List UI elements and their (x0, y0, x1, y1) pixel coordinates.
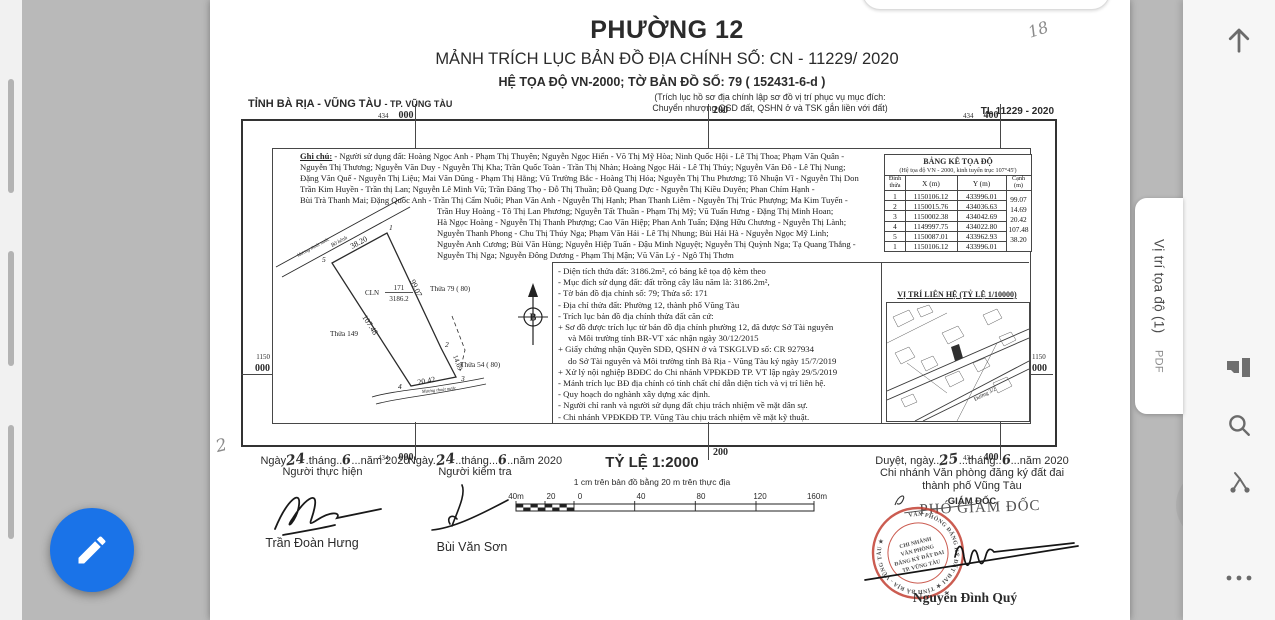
parcel-info-box: - Diện tích thửa đất: 3186.2m², có bảng … (552, 262, 882, 424)
scale-tick-label: 160m (804, 492, 830, 501)
cell: 1150087.01 (905, 232, 957, 241)
cell: 3 (885, 212, 905, 221)
sig1-name: Trần Đoàn Hưng (232, 536, 392, 550)
more-dots-icon (1225, 573, 1253, 583)
col-header: Y (m) (957, 179, 1006, 188)
coords-table-subtitle: (Hệ tọa độ VN - 2000, kinh tuyến trục 10… (885, 167, 1031, 174)
svg-text:3186.2: 3186.2 (389, 295, 409, 303)
sig2-signature (422, 478, 514, 536)
scale-bar (510, 501, 822, 515)
col-header: Đỉnhthửa (885, 176, 905, 189)
doc-purpose-1: (Trích lục hồ sơ địa chính lập sơ đồ vị … (620, 92, 920, 102)
edge-length: 14.69 (1006, 205, 1031, 214)
waterway-label: Mương thoát nước (296, 237, 332, 259)
edge-length: 38.20 (1006, 235, 1031, 244)
cell: 1150015.76 (905, 202, 957, 211)
cell: 434022.80 (957, 222, 1006, 231)
edge-length: 99.07 (1006, 195, 1031, 204)
cell: 2 (885, 202, 905, 211)
app-background: PHƯỜNG 12 MẢNH TRÍCH LỤC BẢN ĐỒ ĐỊA CHÍN… (0, 0, 1275, 620)
search-icon (1226, 412, 1252, 438)
neighbour-parcel: Thửa 54 ( 80) (460, 360, 501, 369)
cell: 1150106.12 (905, 242, 957, 251)
pen-annotation: 2 (214, 435, 229, 457)
cell: 1 (885, 192, 905, 201)
scale-tick-label: 120 (750, 492, 770, 501)
search-bar[interactable] (862, 0, 1110, 10)
grid-label: 434 400 (963, 105, 999, 123)
vertex-label: 4 (398, 382, 402, 391)
grid-label: 434 000 (378, 105, 414, 123)
vicinity-map: Đường 3/2 (886, 302, 1030, 422)
cell: 433996.01 (957, 192, 1006, 201)
north-arrow: B (518, 283, 548, 345)
scale-tick-label: 40 (631, 492, 651, 501)
grid-label: 1150000 (1032, 350, 1059, 374)
edge-length: 107.48 (1006, 225, 1031, 234)
svg-text:CLN: CLN (365, 289, 379, 297)
parcel-landuse-label: CLN 171 3186.2 (365, 284, 413, 303)
scrubber-bar[interactable] (8, 251, 14, 366)
cell: 1150002.38 (905, 212, 957, 221)
svg-text:B: B (530, 313, 537, 324)
more-options-button[interactable] (1216, 558, 1262, 598)
sig1-signature (265, 484, 395, 540)
pen-annotation: 18 (1026, 17, 1051, 41)
doc-title: PHƯỜNG 12 (367, 16, 967, 45)
edit-fab-button[interactable] (50, 508, 134, 592)
cell: 5 (885, 232, 905, 241)
cell: 1149997.75 (905, 222, 957, 231)
sig2-name: Bùi Văn Sơn (392, 540, 552, 554)
vertex-label: 3 (460, 374, 465, 383)
outline-path-button[interactable] (1216, 462, 1262, 502)
pages-icon (1226, 356, 1252, 380)
scale-tick-label: 40m (506, 492, 526, 501)
page-view-button[interactable] (1216, 348, 1262, 388)
file-tab-location[interactable]: Vị trí tọa độ (1) PDF (1135, 198, 1183, 414)
col-header: X (m) (905, 179, 957, 188)
cell: 1150106.12 (905, 192, 957, 201)
col-header: Cạnh(m) (1006, 176, 1031, 189)
document-page[interactable]: PHƯỜNG 12 MẢNH TRÍCH LỤC BẢN ĐỒ ĐỊA CHÍN… (210, 0, 1130, 620)
approve-org1: Chi nhánh Văn phòng đăng ký đất đai (852, 467, 1092, 479)
search-button[interactable] (1216, 405, 1262, 445)
doc-coord-system: HỆ TỌA ĐỘ VN-2000; TỜ BẢN ĐỒ SỐ: 79 ( 15… (362, 75, 962, 89)
doc-province: TỈNH BÀ RỊA - VŨNG TÀU - TP. VŨNG TÀU (248, 98, 452, 110)
scrubber-bar[interactable] (8, 425, 14, 539)
neighbour-parcel: Thửa 79 ( 80) (430, 284, 471, 293)
cell: 434042.69 (957, 212, 1006, 221)
sidebar-panel (1183, 0, 1275, 620)
doc-purpose-2: Chuyển nhượng QSD đất, QSHN ở và TSK gắn… (620, 103, 920, 113)
up-arrow-icon (1224, 25, 1254, 55)
parcel-polygon (332, 233, 456, 386)
scale-tick-label: 20 (541, 492, 561, 501)
file-type-badge: PDF (1153, 350, 1165, 373)
grid-tick (241, 374, 272, 375)
scrubber-bar[interactable] (8, 79, 14, 193)
coords-table: BẢNG KÊ TỌA ĐỘ (Hệ tọa độ VN - 2000, kin… (884, 154, 1032, 252)
grid-tick (415, 104, 416, 148)
sig1-role: Người thực hiện (240, 466, 405, 478)
grid-tick (1029, 374, 1053, 375)
grid-label: 200 (713, 105, 728, 116)
edge-length: 107.48 (360, 313, 380, 336)
vertex-label: 1 (389, 223, 393, 232)
node-path-icon (1226, 470, 1252, 494)
approve-name: Nguyễn Đình Quý (865, 590, 1065, 606)
edge-length: 99.07 (408, 278, 424, 298)
parcel-sketch: B 38.20 99.07 107.48 20.42 14.69 1 2 3 4… (272, 185, 562, 425)
pencil-icon (74, 532, 110, 568)
edge-length: 20.42 (1006, 215, 1031, 224)
cell: 1 (885, 242, 905, 251)
doc-subtitle: MẢNH TRÍCH LỤC BẢN ĐỒ ĐỊA CHÍNH SỐ: CN -… (317, 50, 1017, 69)
vicinity-parcel-marker (951, 344, 963, 361)
scale-note: 1 cm trên bản đồ bằng 20 m trên thực địa (552, 477, 752, 487)
vicinity-title: VỊ TRÍ LIÊN HỆ (TỶ LỆ 1/10000) (884, 290, 1030, 299)
neighbour-parcel: Thửa 149 (330, 329, 358, 338)
grid-tick (1000, 104, 1001, 148)
approve-signature (860, 512, 1085, 584)
vertex-label: 5 (322, 255, 326, 264)
approve-date: Duyệt, ngày..25...tháng..6...năm 2020 (852, 452, 1092, 468)
scroll-top-button[interactable] (1216, 20, 1262, 60)
grid-tick (708, 104, 709, 148)
scale-tick-label: 80 (691, 492, 711, 501)
approve-org2: thành phố Vũng Tàu (852, 480, 1092, 492)
cell: 434036.63 (957, 202, 1006, 211)
scale-title: TỶ LỆ 1:2000 (552, 454, 752, 471)
sig2-role: Người kiểm tra (395, 466, 555, 478)
file-tab-title: Vị trí tọa độ (1) (1152, 239, 1167, 333)
scale-tick-label: 0 (570, 492, 590, 501)
grid-label: 1150000 (243, 350, 270, 374)
cell: 4 (885, 222, 905, 231)
cell: 433962.93 (957, 232, 1006, 241)
svg-text:171: 171 (394, 284, 405, 292)
coords-table-title: BẢNG KÊ TỌA ĐỘ (885, 157, 1031, 166)
cell: 433996.01 (957, 242, 1006, 251)
edge-length: 20.42 (417, 375, 436, 387)
vertex-label: 2 (445, 340, 449, 349)
